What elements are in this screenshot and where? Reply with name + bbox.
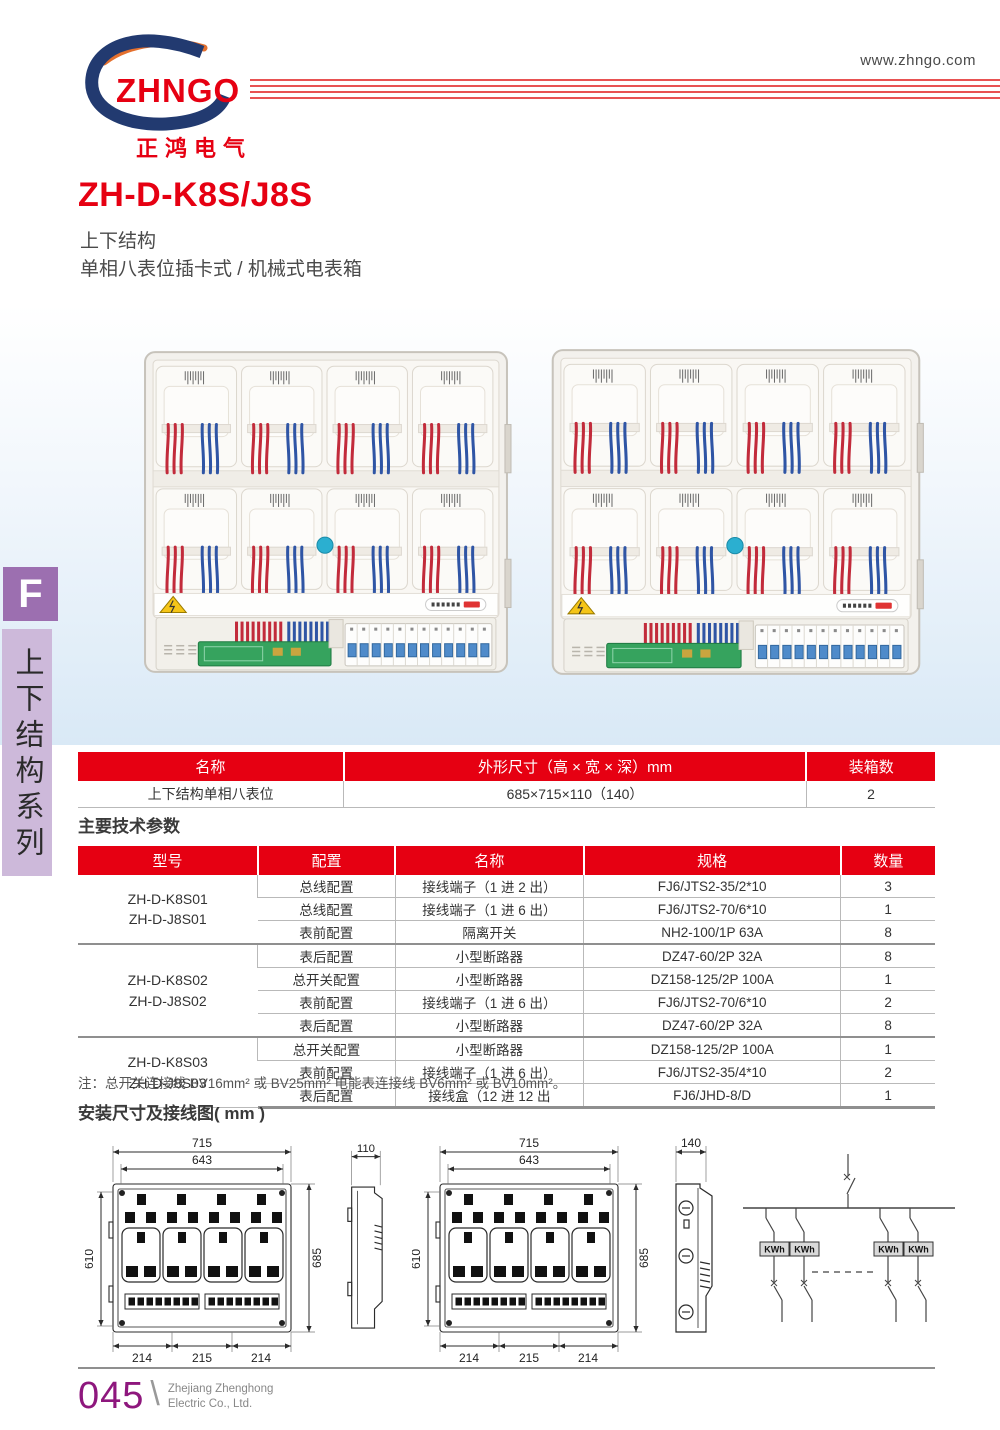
svg-text:214: 214 — [251, 1351, 271, 1362]
branch-circuit: KWh — [874, 1208, 903, 1322]
table-cell: 总线配置 — [258, 898, 395, 921]
tech-table-wrap: 型号配置名称规格数量ZH-D-K8S01ZH-D-J8S01总线配置接线端子（1… — [78, 846, 935, 1109]
wiring-diagram: KWhKWhKWhKWh — [728, 1146, 970, 1346]
table-cell: 8 — [841, 1014, 935, 1038]
table-cell: FJ6/JTS2-70/6*10 — [584, 991, 841, 1014]
column-header: 外形尺寸（高 × 宽 × 深）mm — [344, 752, 807, 781]
company-name-en: Zhejiang Zhenghong Electric Co., Ltd. — [168, 1382, 274, 1412]
meter-compartment — [824, 364, 905, 472]
column-header: 名称 — [78, 752, 344, 781]
table-cell: 3 — [841, 875, 935, 898]
svg-text:140: 140 — [681, 1136, 701, 1150]
column-header: 数量 — [841, 846, 935, 875]
meter-compartment — [327, 489, 407, 596]
meter-compartment — [242, 489, 322, 596]
table-cell: 2 — [806, 781, 935, 808]
branch-circuit: KWh — [790, 1208, 819, 1322]
table-cell: 685×715×110（140） — [344, 781, 807, 808]
table-cell: FJ6/JTS2-35/2*10 — [584, 875, 841, 898]
warning-strip — [154, 593, 498, 615]
svg-text:KWh: KWh — [794, 1245, 815, 1255]
table-cell: 接线端子（1 进 2 出） — [395, 875, 584, 898]
svg-text:KWh: KWh — [908, 1245, 929, 1255]
model-cell: ZH-D-K8S01ZH-D-J8S01 — [78, 875, 258, 944]
table-cell: 小型断路器 — [395, 1014, 584, 1038]
bottom-wiring-section — [564, 619, 908, 672]
column-header: 配置 — [258, 846, 395, 875]
logo-brand-text: ZHNGO — [116, 72, 240, 109]
footer-rule — [78, 1367, 935, 1369]
table-cell: 8 — [841, 944, 935, 968]
table-cell: FJ6/JTS2-70/6*10 — [584, 898, 841, 921]
page-number: 045 — [78, 1377, 144, 1415]
column-header: 名称 — [395, 846, 584, 875]
meter-compartment — [242, 366, 322, 473]
table-cell: DZ158-125/2P 100A — [584, 968, 841, 991]
table-row: 上下结构单相八表位685×715×110（140）2 — [78, 781, 935, 808]
svg-text:215: 215 — [519, 1351, 539, 1362]
meter-compartment — [327, 366, 407, 473]
meter-compartment — [412, 366, 492, 473]
terminal-pcb — [607, 643, 741, 667]
meter-box-illustration — [140, 346, 512, 678]
table-cell: 1 — [841, 898, 935, 921]
meter-compartment — [564, 489, 645, 597]
company-logo: ZHNGO — [68, 34, 268, 134]
column-header: 规格 — [584, 846, 841, 875]
tech-table: 型号配置名称规格数量ZH-D-K8S01ZH-D-J8S01总线配置接线端子（1… — [78, 846, 935, 1109]
svg-text:KWh: KWh — [764, 1245, 785, 1255]
table-cell: 表后配置 — [258, 944, 395, 968]
table-cell: 2 — [841, 1061, 935, 1084]
dimension-drawing-side-2: 140 — [648, 1136, 732, 1362]
table-cell: 小型断路器 — [395, 944, 584, 968]
table-cell: 上下结构单相八表位 — [78, 781, 344, 808]
table-cell: 1 — [841, 1037, 935, 1061]
table-cell: 接线端子（1 进 6 出） — [395, 898, 584, 921]
company-line-2: Electric Co., Ltd. — [168, 1397, 274, 1412]
meter-box-photo-2 — [546, 344, 926, 680]
center-latch — [329, 620, 343, 648]
table-cell: DZ47-60/2P 32A — [584, 944, 841, 968]
side-connector-block — [505, 559, 511, 607]
svg-text:214: 214 — [132, 1351, 152, 1362]
table-cell: 8 — [841, 921, 935, 945]
svg-text:643: 643 — [519, 1153, 539, 1167]
svg-text:214: 214 — [578, 1351, 598, 1362]
side-connector-block — [505, 425, 511, 473]
meter-box-illustration — [546, 344, 926, 680]
side-connector-block — [917, 423, 923, 472]
model-cell: ZH-D-K8S02ZH-D-J8S02 — [78, 944, 258, 1037]
dimension-drawing-front-2: 715643610685214215214 — [412, 1136, 656, 1362]
header-decor-lines — [250, 79, 1000, 103]
table-cell: 表后配置 — [258, 1014, 395, 1038]
svg-text:715: 715 — [519, 1136, 539, 1150]
meter-compartment — [650, 489, 731, 597]
table-cell: DZ47-60/2P 32A — [584, 1014, 841, 1038]
install-section-title: 安装尺寸及接线图( mm ) — [78, 1099, 265, 1124]
meter-compartment — [737, 489, 818, 597]
table-cell: 2 — [841, 991, 935, 1014]
tech-section-title: 主要技术参数 — [78, 812, 180, 837]
company-line-1: Zhejiang Zhenghong — [168, 1382, 274, 1397]
dimension-drawing-front-1: 715643610685214215214 — [85, 1136, 329, 1362]
product-subtitle-structure: 上下结构 — [80, 226, 156, 253]
table-cell: FJ6/JTS2-35/4*10 — [584, 1061, 841, 1084]
table-cell: 接线端子（1 进 6 出） — [395, 991, 584, 1014]
svg-text:KWh: KWh — [878, 1245, 899, 1255]
table-cell: 1 — [841, 968, 935, 991]
svg-text:610: 610 — [85, 1249, 96, 1269]
table-cell: 1 — [841, 1084, 935, 1108]
meter-compartment — [824, 489, 905, 597]
branch-circuit: KWh — [760, 1208, 789, 1322]
svg-text:685: 685 — [310, 1248, 324, 1268]
meter-compartment — [737, 364, 818, 472]
branch-circuit: KWh — [904, 1208, 933, 1322]
bottom-wiring-section — [156, 618, 496, 670]
meter-compartment — [156, 489, 236, 596]
footer-slash: \ — [150, 1377, 159, 1411]
meter-compartment — [412, 489, 492, 596]
footer: 045 \ Zhejiang Zhenghong Electric Co., L… — [78, 1377, 273, 1415]
svg-text:643: 643 — [192, 1153, 212, 1167]
svg-text:215: 215 — [192, 1351, 212, 1362]
svg-text:214: 214 — [459, 1351, 479, 1362]
warning-strip — [562, 594, 910, 616]
svg-text:715: 715 — [192, 1136, 212, 1150]
table-cell: 小型断路器 — [395, 1037, 584, 1061]
table-cell: 隔离开关 — [395, 921, 584, 945]
sidebar-section-letter: F — [3, 567, 58, 621]
svg-text:110: 110 — [357, 1143, 375, 1155]
svg-text:610: 610 — [412, 1249, 423, 1269]
table-cell: 表前配置 — [258, 991, 395, 1014]
table-cell: 总开关配置 — [258, 968, 395, 991]
catalog-page: ZHNGO 正鸿电气 www.zhngo.com ZH-D-K8S/J8S 上下… — [0, 0, 1000, 1430]
sidebar-series-strip: 上下结构系列 — [2, 629, 52, 876]
size-table: 名称外形尺寸（高 × 宽 × 深）mm装箱数上下结构单相八表位685×715×1… — [78, 752, 935, 808]
column-header: 型号 — [78, 846, 258, 875]
terminal-pcb — [198, 642, 331, 666]
table-cell: 总线配置 — [258, 875, 395, 898]
size-table-wrap: 名称外形尺寸（高 × 宽 × 深）mm装箱数上下结构单相八表位685×715×1… — [78, 752, 935, 808]
table-cell: 总开关配置 — [258, 1037, 395, 1061]
seal-button — [317, 537, 333, 553]
table-cell: 小型断路器 — [395, 968, 584, 991]
logo-graphic: ZHNGO — [68, 34, 268, 134]
center-latch — [739, 621, 753, 650]
table-row: ZH-D-K8S03ZH-D-J8S03总开关配置小型断路器DZ158-125/… — [78, 1037, 935, 1061]
table-cell: 表前配置 — [258, 921, 395, 945]
meter-box-photo-1 — [140, 346, 512, 678]
table-row: ZH-D-K8S02ZH-D-J8S02表后配置小型断路器DZ47-60/2P … — [78, 944, 935, 968]
sidebar-series-label: 上下结构系列 — [6, 647, 48, 863]
table-row: ZH-D-K8S01ZH-D-J8S01总线配置接线端子（1 进 2 出）FJ6… — [78, 875, 935, 898]
side-connector-block — [917, 560, 923, 609]
note-text: 注：总开关连接线 BV16mm² 或 BV25mm² 电能表连接线 BV6mm²… — [78, 1072, 566, 1092]
meter-compartment — [156, 366, 236, 473]
logo-company-cn: 正鸿电气 — [136, 131, 252, 163]
seal-button — [727, 537, 743, 553]
meter-compartment — [650, 364, 731, 472]
meter-compartment — [564, 364, 645, 472]
column-header: 装箱数 — [806, 752, 935, 781]
table-cell: NH2-100/1P 63A — [584, 921, 841, 945]
product-model-title: ZH-D-K8S/J8S — [78, 176, 313, 215]
dimension-drawing-side-1: 110 — [325, 1136, 405, 1362]
website-text: www.zhngo.com — [860, 52, 976, 69]
table-cell: DZ158-125/2P 100A — [584, 1037, 841, 1061]
table-cell: FJ6/JHD-8/D — [584, 1084, 841, 1108]
product-subtitle-type: 单相八表位插卡式 / 机械式电表箱 — [80, 254, 362, 281]
